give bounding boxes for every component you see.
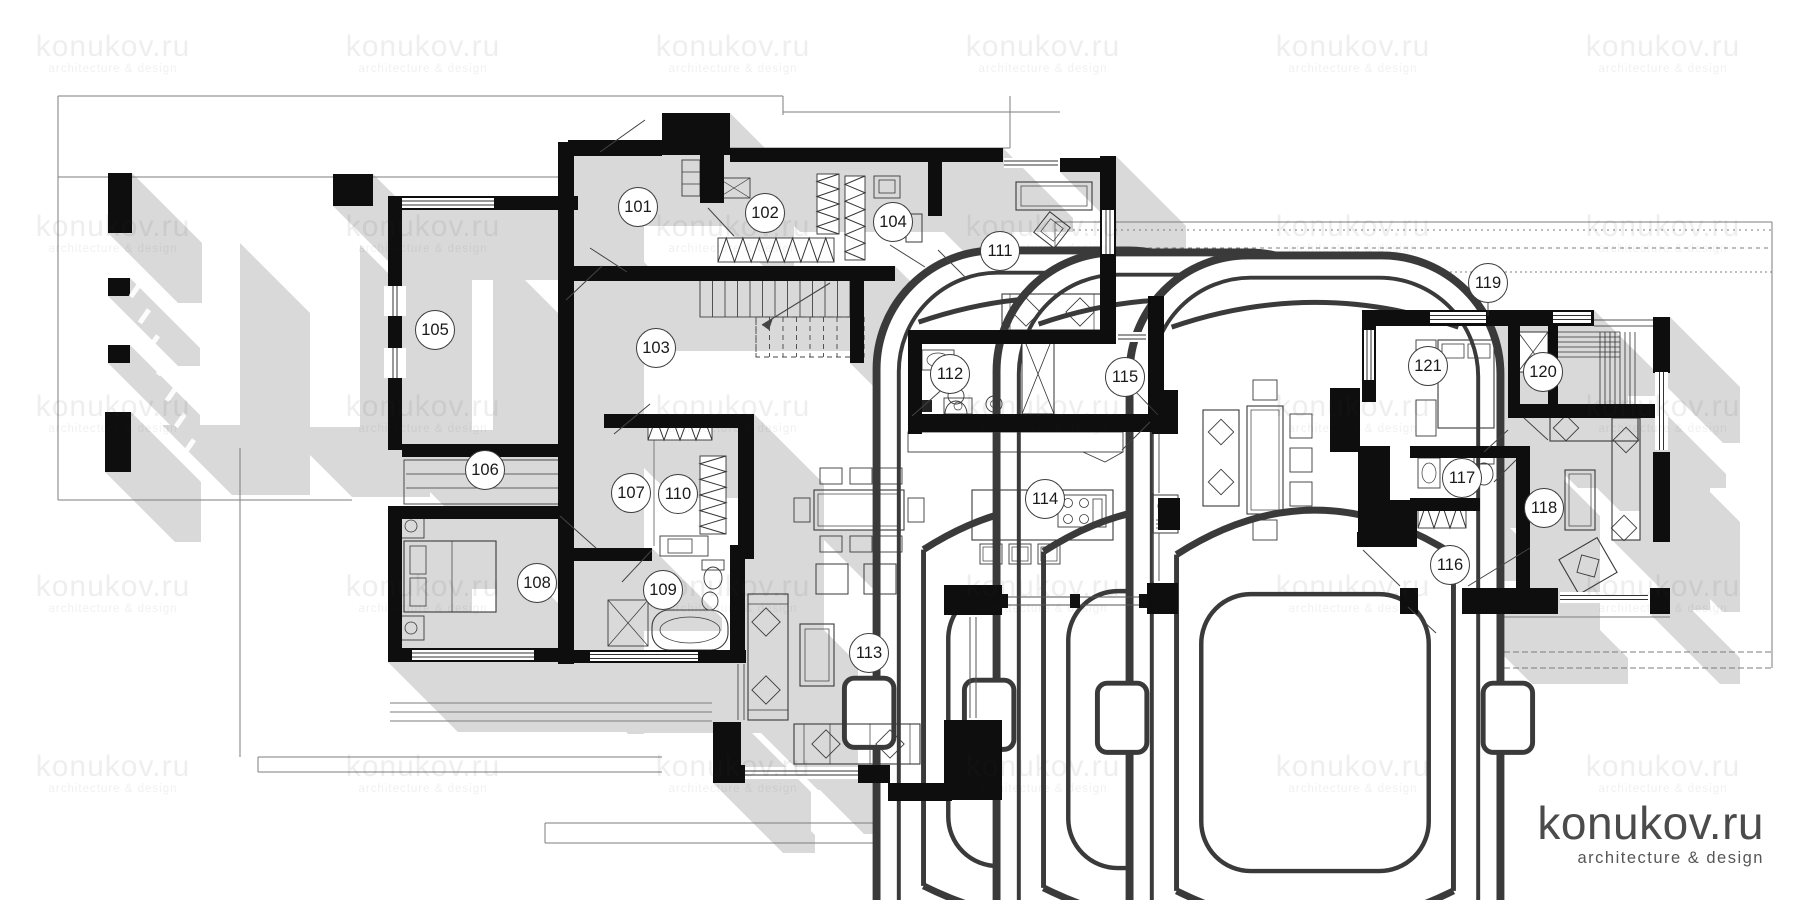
room-number-text: 113 <box>856 644 882 663</box>
room-number-text: 110 <box>665 485 691 504</box>
room-number-text: 105 <box>421 321 449 340</box>
room-number-text: 117 <box>1449 469 1475 488</box>
room-number-text: 103 <box>642 339 670 358</box>
room-label-120: 120 <box>1523 352 1563 392</box>
brand-logo: konukov.ru architecture & design <box>1537 800 1764 867</box>
room-label-118: 118 <box>1524 488 1564 528</box>
room-number-text: 104 <box>879 213 907 232</box>
room-label-119: 119 <box>1468 263 1508 303</box>
brand-subtitle: architecture & design <box>1537 850 1764 867</box>
floor-plan-page: konukov.ruarchitecture & designkonukov.r… <box>0 0 1800 900</box>
room-number-text: 111 <box>987 242 1012 261</box>
room-label-106: 106 <box>465 450 505 490</box>
room-number-text: 102 <box>751 204 779 223</box>
room-number-text: 118 <box>1531 499 1557 518</box>
room-label-108: 108 <box>517 563 557 603</box>
room-number-text: 121 <box>1414 357 1442 376</box>
room-number-text: 119 <box>1475 274 1501 293</box>
room-label-116: 116 <box>1430 545 1470 585</box>
room-number-text: 116 <box>1437 556 1463 575</box>
room-number-text: 112 <box>937 365 963 384</box>
room-label-110: 110 <box>658 474 698 514</box>
floor-plan-drawing <box>0 0 1800 900</box>
room-number-text: 106 <box>471 461 499 480</box>
room-number-text: 108 <box>523 574 551 593</box>
room-label-114: 114 <box>1025 479 1065 519</box>
room-label-121: 121 <box>1408 346 1448 386</box>
room-number-text: 114 <box>1032 490 1058 509</box>
room-label-105: 105 <box>415 310 455 350</box>
room-number-text: 115 <box>1112 368 1138 387</box>
room-label-109: 109 <box>643 570 683 610</box>
room-label-113: 113 <box>849 633 889 673</box>
room-label-101: 101 <box>618 187 658 227</box>
room-label-107: 107 <box>611 473 651 513</box>
room-number-text: 107 <box>617 484 645 503</box>
room-label-117: 117 <box>1442 458 1482 498</box>
room-label-103: 103 <box>636 328 676 368</box>
brand-title: konukov.ru <box>1537 800 1764 846</box>
room-number-text: 120 <box>1529 363 1557 382</box>
room-label-102: 102 <box>745 193 785 233</box>
room-number-text: 109 <box>649 581 677 600</box>
room-number-text: 101 <box>624 198 652 217</box>
room-label-112: 112 <box>930 354 970 394</box>
room-label-115: 115 <box>1105 357 1145 397</box>
room-label-104: 104 <box>873 202 913 242</box>
room-label-111: 111 <box>980 231 1020 271</box>
